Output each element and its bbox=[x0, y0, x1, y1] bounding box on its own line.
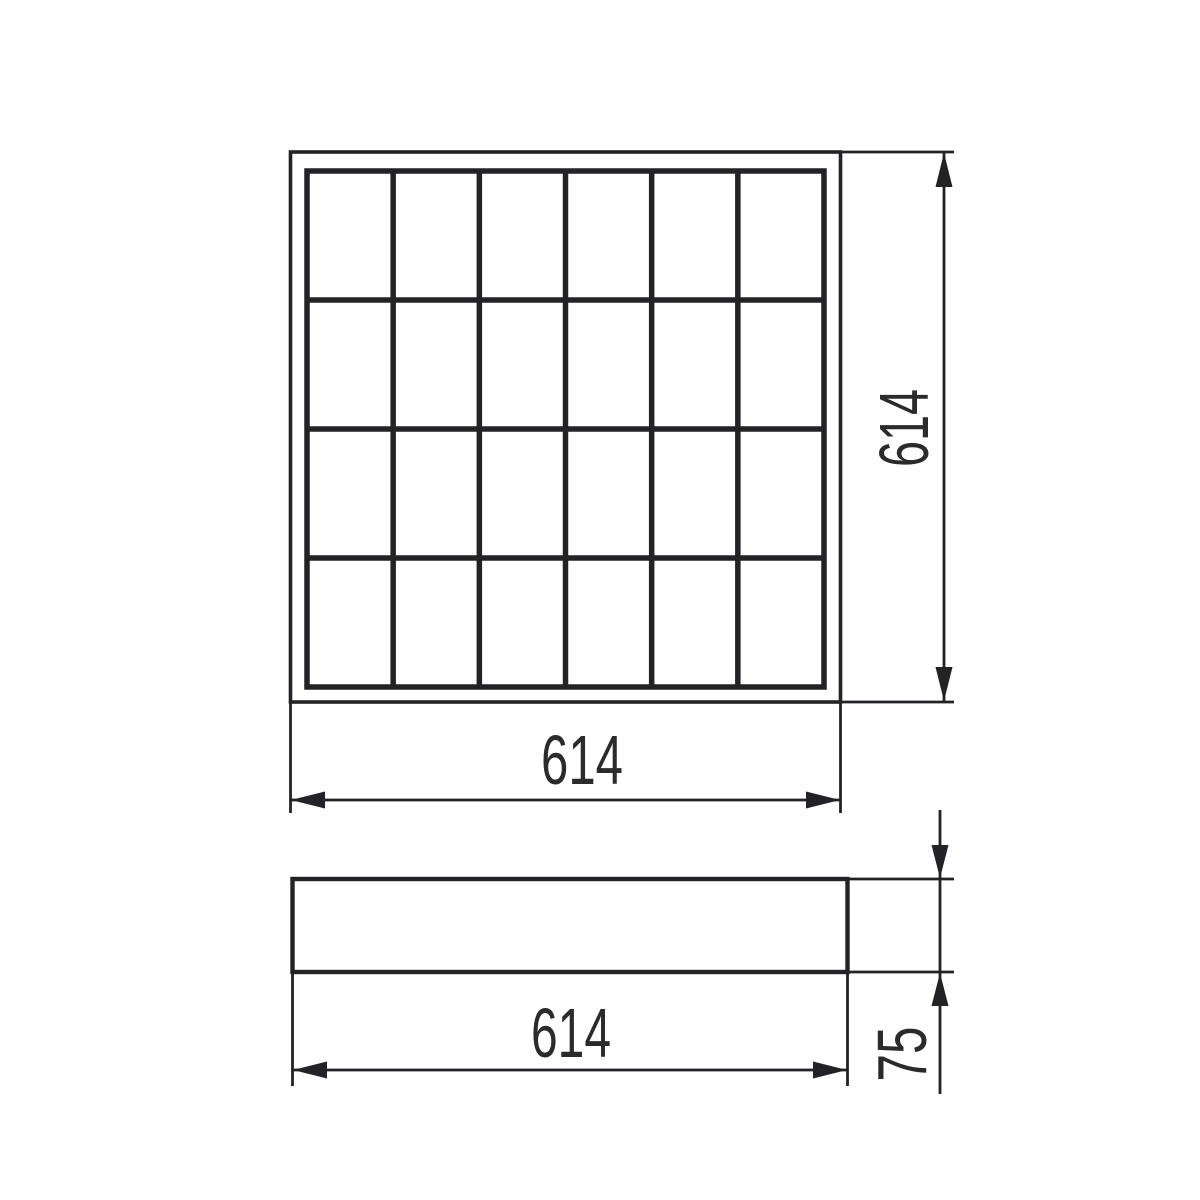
arrow-right-icon bbox=[806, 792, 840, 809]
dimension-drawing-page: 614 614 614 bbox=[0, 0, 1200, 1200]
arrow-up-icon bbox=[936, 153, 953, 187]
side-view bbox=[293, 879, 848, 972]
top-view bbox=[291, 152, 841, 702]
top-view-height-dimension: 614 bbox=[841, 152, 955, 702]
arrow-left-icon bbox=[291, 792, 325, 809]
arrow-right-icon bbox=[813, 1062, 847, 1079]
side-view-height-label: 75 bbox=[863, 1027, 941, 1082]
side-view-outline bbox=[293, 879, 848, 972]
side-view-height-dimension: 75 bbox=[848, 810, 955, 1094]
luminaire-dimension-drawing: 614 614 614 bbox=[0, 0, 1200, 1200]
top-view-height-label: 614 bbox=[865, 389, 943, 467]
arrow-up-icon bbox=[932, 973, 949, 1006]
arrow-down-icon bbox=[936, 667, 953, 701]
side-view-width-label: 614 bbox=[531, 994, 611, 1072]
top-view-width-dimension: 614 bbox=[291, 702, 841, 813]
arrow-left-icon bbox=[293, 1062, 327, 1079]
top-view-width-label: 614 bbox=[541, 721, 623, 799]
side-view-width-dimension: 614 bbox=[293, 972, 848, 1086]
arrow-down-icon bbox=[932, 845, 949, 878]
